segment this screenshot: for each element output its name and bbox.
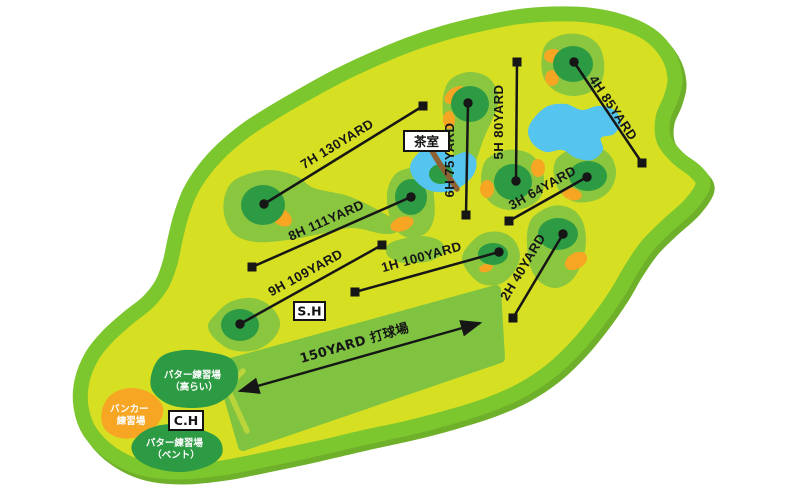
bunker-5h-right (531, 159, 545, 177)
start-house-label: S.H (297, 304, 321, 319)
hole-9-green-dot (235, 319, 244, 328)
hole-7-tee-marker (419, 102, 428, 111)
hole-8-tee-marker (248, 263, 257, 272)
hole-2-green-dot (558, 229, 567, 238)
course-map-svg: 150YARD 打球場 (0, 0, 800, 495)
hole-8-green-dot (406, 192, 415, 201)
hole-4-tee-marker (638, 159, 647, 168)
hole-1-green-dot (494, 247, 503, 256)
golf-course-map: 150YARD 打球場 (0, 0, 800, 495)
club-house-label: C.H (174, 413, 198, 428)
hole-5-green-dot (511, 176, 520, 185)
tea-house-label: 茶室 (413, 134, 440, 149)
hole-5-line (516, 62, 517, 181)
hole-2-tee-marker (509, 314, 518, 323)
hole-1-tee-marker (351, 288, 360, 297)
hole-5-tee-marker (513, 58, 522, 67)
hole-4-green-dot (569, 57, 578, 66)
hole-3-tee-marker (505, 217, 514, 226)
hole-6-tee-marker (462, 211, 471, 220)
hole-7-green-dot (259, 199, 268, 208)
bunker-5h-left (480, 180, 494, 198)
hole-5-label: 5H 80YARD (491, 85, 506, 160)
hole-3-green-dot (582, 172, 591, 181)
hole-6-green-dot (463, 98, 472, 107)
hole-9-tee-marker (378, 241, 387, 250)
